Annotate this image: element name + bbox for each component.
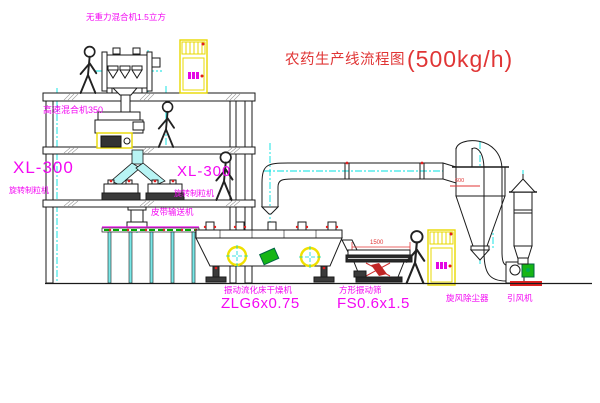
dryer-feet bbox=[206, 266, 334, 282]
cyclone-discharge bbox=[471, 250, 489, 260]
cyclone-cone bbox=[456, 196, 505, 246]
sieve-model-label: FS0.6x1.5 bbox=[337, 296, 410, 311]
dryer-name-label: 振动流化床干燥机 bbox=[224, 286, 292, 295]
granulator-right-model-label: XL-300 bbox=[177, 164, 231, 179]
granulator-right-name-label: 旋转制粒机 bbox=[174, 190, 214, 198]
cyclone-label: 旋风除尘器 bbox=[446, 294, 489, 303]
exhaust-duct bbox=[262, 162, 443, 214]
conveyor-legs bbox=[108, 232, 195, 283]
high-speed-mixer-label: 高速混合机350 bbox=[43, 106, 103, 115]
fluid-bed-dryer bbox=[196, 222, 358, 282]
stack-cap bbox=[511, 179, 535, 192]
person-ground bbox=[407, 231, 425, 283]
process-flow-diagram: 农药生产线流程图 (500kg/h) 无重力混合机1.5立方 高速混合机350 … bbox=[0, 0, 600, 403]
control-cabinet-1 bbox=[180, 40, 207, 93]
title-chinese: 农药生产线流程图 bbox=[285, 48, 405, 73]
cyclone-dimension: 600 bbox=[455, 179, 464, 185]
chute-to-conveyor bbox=[127, 207, 147, 227]
belt-conveyor bbox=[102, 227, 199, 283]
sieve-name-label: 方形振动筛 bbox=[339, 286, 382, 295]
control-cabinet-2 bbox=[428, 230, 455, 285]
hs-mixer-motor bbox=[101, 136, 121, 147]
sieve-motor bbox=[354, 271, 366, 277]
gravity-mixer-label: 无重力混合机1.5立方 bbox=[86, 13, 166, 22]
granulator-left-name-label: 旋转制粒机 bbox=[9, 187, 49, 195]
mixer-drive-motor bbox=[152, 58, 160, 67]
high-speed-mixer bbox=[95, 112, 144, 148]
dryer-model-label: ZLG6x0.75 bbox=[221, 296, 300, 311]
gravity-free-mixer bbox=[102, 48, 160, 95]
exhaust-stack bbox=[509, 174, 537, 264]
sieve-length-dimension: 1500 bbox=[370, 240, 383, 246]
dryer-top-nozzles bbox=[204, 222, 338, 230]
granulator-left-model-label: XL-300 bbox=[13, 159, 74, 176]
title-capacity: (500kg/h) bbox=[407, 46, 513, 73]
belt-conveyor-label: 皮带输送机 bbox=[151, 208, 194, 217]
chute-to-hs-mixer bbox=[121, 95, 130, 113]
mixer-hoppers bbox=[108, 66, 142, 78]
person-top-floor bbox=[81, 47, 97, 93]
fan-label: 引风机 bbox=[507, 294, 533, 303]
induced-draft-fan bbox=[506, 262, 542, 286]
dryer-deck bbox=[196, 230, 342, 238]
drawing-title: 农药生产线流程图 (500kg/h) bbox=[285, 46, 513, 73]
